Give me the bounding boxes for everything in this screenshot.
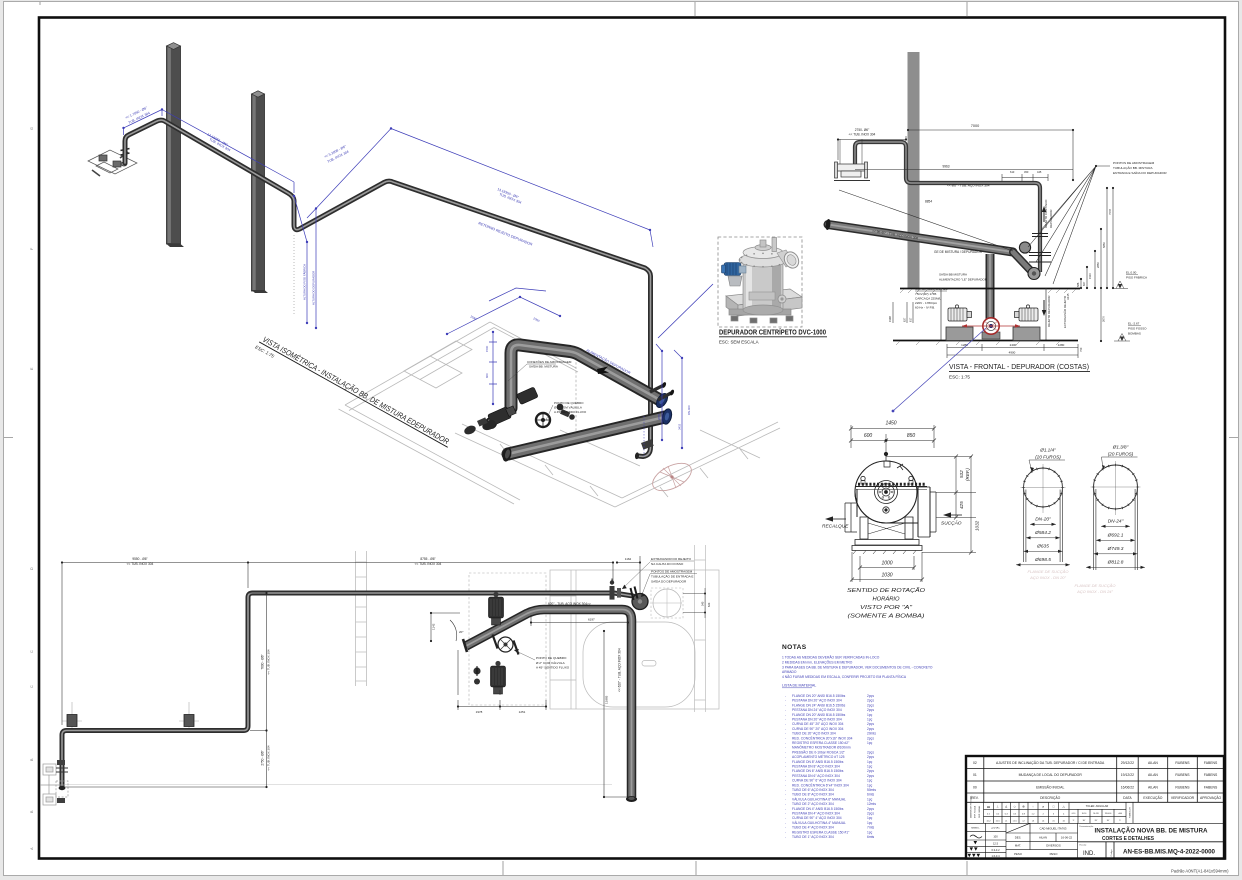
svg-text:PISO FOSSO: PISO FOSSO: [1128, 327, 1147, 331]
svg-text:(SOMENTE A BOMBA): (SOMENTE A BOMBA): [848, 614, 925, 620]
svg-text:-: -: [785, 835, 786, 839]
svg-text:TUBO DE 8" AÇO INOX 304: TUBO DE 8" AÇO INOX 304: [792, 793, 834, 797]
svg-text:FLANGE DE SUCÇÃO: FLANGE DE SUCÇÃO: [1075, 583, 1116, 588]
svg-text:<< Ø6" - TUB. AÇO INOX 304: << Ø6" - TUB. AÇO INOX 304: [947, 184, 990, 188]
svg-text:8854: 8854: [925, 200, 932, 204]
svg-text:TUBULAÇÃO DE ENTRADA E: TUBULAÇÃO DE ENTRADA E: [651, 574, 693, 579]
svg-text:FABENS: FABENS: [1204, 761, 1218, 765]
svg-text:1 TODAS AS MEDIDAS DEVERÃO SER: 1 TODAS AS MEDIDAS DEVERÃO SER VERIFICAD…: [782, 655, 880, 660]
svg-text:-: -: [785, 788, 786, 792]
svg-text:TUBO DE 6" AÇO INOX 304: TUBO DE 6" AÇO INOX 304: [792, 788, 834, 792]
svg-text:545: 545: [701, 601, 705, 606]
svg-text:PESTANA DN 20" AÇO INOX 304: PESTANA DN 20" AÇO INOX 304: [792, 718, 842, 722]
svg-text:Ø698.5: Ø698.5: [1034, 557, 1051, 563]
svg-text:TOLER. ANGULAR: TOLER. ANGULAR: [1086, 804, 1109, 808]
svg-text:ENTRADA E SAÍDA DO DEPURADOR: ENTRADA E SAÍDA DO DEPURADOR: [1113, 171, 1167, 175]
svg-text:⊥: ⊥: [996, 805, 999, 809]
svg-text:Denominação:: Denominação:: [1080, 825, 1094, 828]
svg-text:PRESSÃO DE 0-10bar ROSCA 1/2": PRESSÃO DE 0-10bar ROSCA 1/2": [792, 749, 846, 754]
svg-text:20°: 20°: [459, 630, 464, 634]
svg-text:AÇO INOX - DN 24": AÇO INOX - DN 24": [1076, 589, 1113, 594]
svg-text:<< TUB. INOX 304: << TUB. INOX 304: [849, 133, 876, 137]
svg-text:1978: 1978: [476, 710, 483, 714]
svg-text:NOTAS: NOTAS: [782, 644, 807, 651]
svg-text:12mts: 12mts: [867, 802, 876, 806]
svg-text:<< TUB. INOX 304: << TUB. INOX 304: [415, 562, 442, 566]
svg-text:TUBO DE 2" AÇO INOX 304: TUBO DE 2" AÇO INOX 304: [792, 802, 834, 806]
svg-text:A 45° SENTIDO FLUXO: A 45° SENTIDO FLUXO: [536, 666, 570, 670]
svg-text:▬: ▬: [987, 805, 990, 809]
svg-text:-: -: [785, 713, 786, 717]
svg-text:2400: 2400: [1010, 343, 1017, 347]
svg-text:1pç: 1pç: [867, 821, 873, 825]
svg-text:Ø1.1/4": Ø1.1/4": [1039, 448, 1056, 453]
svg-text:FLANGE DN 20" ANSI B16.5 150lb: FLANGE DN 20" ANSI B16.5 150lbs: [792, 713, 846, 717]
svg-text:DEPURADOR CENTRÍPETO DVC-100: DEPURADOR CENTRÍPETO DVC-1000: [719, 328, 826, 337]
svg-text:4 NÃO FURAR MEDIDAS EM ESCALA,: 4 NÃO FURAR MEDIDAS EM ESCALA, CONFERIR …: [782, 674, 907, 679]
svg-text:⌀: ⌀: [1042, 805, 1044, 809]
svg-text:2pçs: 2pçs: [867, 812, 874, 816]
svg-text:-: -: [785, 807, 786, 811]
svg-text:620" - TUB. AÇO INOX 304>>: 620" - TUB. AÇO INOX 304>>: [548, 602, 591, 606]
svg-text:REGISTRO ESFERA CLASSE 150 #1": REGISTRO ESFERA CLASSE 150 #1": [792, 830, 850, 834]
svg-text:AILAN: AILAN: [1148, 786, 1158, 790]
svg-text:-: -: [785, 830, 786, 834]
svg-text:DN-600: DN-600: [687, 405, 691, 415]
svg-text:02: 02: [973, 761, 977, 765]
svg-text:9963: 9963: [942, 165, 949, 169]
svg-text:623: 623: [707, 602, 711, 607]
svg-text:PESTANA DN 4" AÇO INOX 304: PESTANA DN 4" AÇO INOX 304: [792, 812, 840, 816]
svg-text:DEPURADOR: DEPURADOR: [1049, 210, 1053, 228]
svg-text:Ø 2" COM VÁLVULA: Ø 2" COM VÁLVULA: [554, 406, 582, 410]
svg-text:120-400: 120-400: [1105, 813, 1112, 815]
svg-text:75CV(4P) 1785: 75CV(4P) 1785: [915, 292, 937, 296]
svg-text:-: -: [785, 732, 786, 736]
svg-text:C: C: [30, 650, 34, 653]
svg-text:10-50: 10-50: [1082, 813, 1087, 815]
svg-text:C: C: [30, 685, 34, 688]
svg-text:SÍMBOLOS: SÍMBOLOS: [1129, 807, 1132, 818]
svg-text:3445: 3445: [1066, 293, 1070, 300]
svg-text:<< TUB. INOX 304: << TUB. INOX 304: [127, 562, 154, 566]
svg-text:Ø 2" COM VÁLVULA: Ø 2" COM VÁLVULA: [536, 661, 566, 665]
svg-text:ALIMENTAÇÃO "LE" DEPURADOR: ALIMENTAÇÃO "LE" DEPURADOR: [939, 277, 988, 282]
svg-text:613: 613: [1010, 170, 1015, 174]
svg-text:3 PARA BASES DA BB. DE MISTURA: 3 PARA BASES DA BB. DE MISTURA E DEPURAD…: [782, 666, 933, 670]
svg-text:-: -: [785, 718, 786, 722]
svg-text:SÍMBOL.: SÍMBOL.: [971, 827, 980, 830]
svg-text:CURVA DE 90° 6" AÇO INOX 304: CURVA DE 90° 6" AÇO INOX 304: [792, 779, 842, 783]
svg-text:1pç: 1pç: [867, 816, 873, 820]
svg-text:3415: 3415: [678, 423, 682, 430]
svg-text:VÁLVULA GUILHOTINA 4" MANUAL: VÁLVULA GUILHOTINA 4" MANUAL: [792, 821, 846, 825]
svg-text:ARMADO: ARMADO: [782, 670, 797, 674]
svg-text:2pçs: 2pçs: [867, 774, 874, 778]
svg-text:2pçs: 2pçs: [867, 755, 874, 759]
svg-text:-: -: [785, 821, 786, 825]
svg-text:Padrão A0NT(A1-841x594mm): Padrão A0NT(A1-841x594mm): [1171, 869, 1229, 874]
svg-text:29/12/22: 29/12/22: [1121, 761, 1134, 765]
svg-text:-: -: [785, 722, 786, 726]
svg-text:G: G: [30, 127, 34, 130]
svg-text:-: -: [785, 694, 786, 698]
svg-text:EXECUÇÃO: EXECUÇÃO: [1143, 795, 1162, 800]
svg-text:PONTO DE QUEBRO: PONTO DE QUEBRO: [536, 656, 567, 660]
svg-text:850: 850: [907, 433, 916, 439]
svg-text:VISTO POR "A": VISTO POR "A": [860, 605, 914, 611]
svg-text:CAD MIGUEL ITA763: CAD MIGUEL ITA763: [1040, 827, 1067, 831]
svg-text:DATA: DATA: [1123, 796, 1132, 800]
svg-text:PESTANA DN 8" AÇO INOX 304: PESTANA DN 8" AÇO INOX 304: [792, 765, 840, 769]
svg-text:CARCAÇA 225M/L: CARCAÇA 225M/L: [915, 297, 941, 301]
svg-text:<< TUB. INOX 304: << TUB. INOX 304: [267, 649, 271, 674]
svg-text:7000: 7000: [971, 124, 979, 128]
svg-text:1142: 1142: [432, 623, 436, 630]
svg-text:DESCRIÇÃO: DESCRIÇÃO: [1040, 795, 1061, 800]
svg-text:2 MEDIDAS EM mm, ELEVAÇÕES EM: 2 MEDIDAS EM mm, ELEVAÇÕES EM METRO: [782, 660, 853, 665]
svg-text:2pçs: 2pçs: [867, 708, 874, 712]
svg-text:-: -: [785, 708, 786, 712]
svg-text:REJEITO CONTÍNUO: REJEITO CONTÍNUO: [1044, 199, 1048, 228]
svg-text:CURVA DE 45° 20" AÇO INOX 304: CURVA DE 45° 20" AÇO INOX 304: [792, 722, 844, 726]
svg-text:-: -: [785, 727, 786, 731]
svg-text:Escala:: Escala:: [1080, 844, 1088, 846]
svg-text:100: 100: [993, 835, 998, 839]
svg-text:-: -: [785, 699, 786, 703]
svg-text:(20 FUROS): (20 FUROS): [1035, 455, 1061, 460]
svg-text:TUBULAÇÃO BB. MISTURA: TUBULAÇÃO BB. MISTURA: [1113, 165, 1153, 170]
svg-text:Ø584.2: Ø584.2: [1034, 530, 1051, 536]
svg-text:HORÁRIO: HORÁRIO: [873, 596, 900, 603]
svg-text:2pçs: 2pçs: [867, 699, 874, 703]
svg-text:PESO: PESO: [1014, 852, 1023, 856]
svg-text:1°: 1°: [1073, 820, 1075, 822]
svg-text:RUBENS: RUBENS: [1175, 786, 1190, 790]
svg-text:FLANGE DN 8" ANSI B16.5 150lbs: FLANGE DN 8" ANSI B16.5 150lbs: [792, 760, 844, 764]
svg-text:FLANGE DN 20" ANSI B16.5 150lb: FLANGE DN 20" ANSI B16.5 150lbs: [792, 694, 846, 698]
svg-text:1pç: 1pç: [867, 783, 873, 787]
svg-text:Ø812.8: Ø812.8: [1107, 560, 1124, 566]
svg-text:<< TUB. INOX 304: << TUB. INOX 304: [267, 745, 271, 770]
svg-text:7600 - Ø6": 7600 - Ø6": [261, 654, 265, 669]
svg-text:EL.-2.67: EL.-2.67: [1128, 322, 1140, 326]
svg-text:-: -: [785, 802, 786, 806]
svg-text:-: -: [785, 812, 786, 816]
svg-text:REJEITO DEPURADOR: REJEITO DEPURADOR: [1047, 296, 1051, 327]
svg-text:ESC: SEM ESCALA: ESC: SEM ESCALA: [719, 340, 759, 345]
svg-text:<< 620" - TUB. AÇO INOX 304: << 620" - TUB. AÇO INOX 304: [618, 648, 622, 692]
svg-text:Ø1.3/8": Ø1.3/8": [1112, 445, 1129, 450]
svg-text:TUBO DE 1" AÇO INOX 304: TUBO DE 1" AÇO INOX 304: [792, 835, 834, 839]
svg-text:REGISTRO ESFERA CLASSE 150 #2": REGISTRO ESFERA CLASSE 150 #2": [792, 741, 850, 745]
svg-text:-: -: [785, 779, 786, 783]
svg-text:CURVA DE 90° 4" AÇO INOX 304: CURVA DE 90° 4" AÇO INOX 304: [792, 816, 842, 820]
svg-text:2650: 2650: [657, 413, 661, 420]
svg-text:-: -: [785, 793, 786, 797]
svg-text:FLANGE DN 24" ANSI B16.5 150lb: FLANGE DN 24" ANSI B16.5 150lbs: [792, 703, 846, 707]
svg-text:APROVAÇÃO: APROVAÇÃO: [1200, 795, 1222, 800]
svg-text:TUBO DE 20" AÇO INOX 304: TUBO DE 20" AÇO INOX 304: [792, 732, 836, 736]
svg-text:4900: 4900: [1009, 351, 1016, 355]
svg-text:1pç: 1pç: [867, 741, 873, 745]
svg-text:5850: 5850: [1102, 242, 1106, 248]
svg-text:CURVA DE 90° 20" AÇO INOX 304: CURVA DE 90° 20" AÇO INOX 304: [792, 727, 844, 731]
svg-text:MUDANÇA DE LOCAL DO DEPURADOR: MUDANÇA DE LOCAL DO DEPURADOR: [1019, 773, 1083, 777]
svg-text:-: -: [785, 746, 786, 750]
svg-text:-: -: [785, 760, 786, 764]
svg-text:2pçs: 2pçs: [867, 727, 874, 731]
svg-text:LISTA DE MATERIAL: LISTA DE MATERIAL: [782, 684, 816, 688]
svg-text:-: -: [785, 783, 786, 787]
svg-text:9550 - Ø6": 9550 - Ø6": [132, 557, 147, 561]
svg-text:425: 425: [959, 501, 964, 509]
svg-text:EL.0.00: EL.0.00: [1126, 271, 1137, 275]
svg-text:D: D: [30, 567, 34, 570]
svg-text:-: -: [785, 736, 786, 740]
svg-text:00: 00: [973, 786, 977, 790]
svg-text:50-120: 50-120: [1093, 813, 1099, 815]
svg-text:RECALQUE: RECALQUE: [822, 524, 849, 530]
svg-text:2pçs: 2pçs: [867, 769, 874, 773]
svg-text:-: -: [785, 765, 786, 769]
svg-text:RUBENS: RUBENS: [1175, 761, 1190, 765]
svg-text:1998: 1998: [888, 316, 892, 322]
svg-text:MAT.: MAT.: [1015, 844, 1021, 848]
svg-text:PESO: PESO: [1050, 852, 1059, 856]
svg-text:PONTOS DE AMOSTRAGEM: PONTOS DE AMOSTRAGEM: [651, 570, 693, 574]
svg-text:FABENS: FABENS: [1204, 786, 1218, 790]
svg-text:19/12/22: 19/12/22: [1121, 773, 1134, 777]
svg-text:-: -: [785, 750, 786, 754]
svg-text:8755 - Ø6": 8755 - Ø6": [420, 557, 435, 561]
svg-text:DN-24": DN-24": [1108, 519, 1124, 525]
svg-text:1500: 1500: [485, 345, 489, 352]
svg-text:860: 860: [485, 373, 489, 378]
svg-text:1000: 1000: [881, 561, 892, 567]
svg-text:FLANGE DN 4" ANSI B16.5 150lbs: FLANGE DN 4" ANSI B16.5 150lbs: [792, 807, 844, 811]
svg-text:NA CALHA DO FOSSO: NA CALHA DO FOSSO: [651, 562, 684, 566]
svg-text:586: 586: [1076, 282, 1080, 287]
svg-text:Ø749.3: Ø749.3: [1107, 546, 1124, 552]
svg-text:PESTANA DN 6" AÇO INOX 304: PESTANA DN 6" AÇO INOX 304: [792, 774, 840, 778]
svg-text:-: -: [785, 741, 786, 745]
svg-text:-: -: [785, 816, 786, 820]
svg-text:∡: ∡: [1005, 805, 1008, 809]
svg-text:PONTOS DE AMOSTRAGEM: PONTOS DE AMOSTRAGEM: [1113, 161, 1155, 165]
svg-text:AJUSTES DE INCLINAÇÃO DA TUB.: AJUSTES DE INCLINAÇÃO DA TUB. DEPURADOR …: [996, 760, 1105, 765]
svg-text:DES.: DES.: [1015, 835, 1022, 839]
svg-text:FLANGE DN 6" ANSI B16.5 150lbs: FLANGE DN 6" ANSI B16.5 150lbs: [792, 769, 844, 773]
svg-text:PISO FÁBRICA: PISO FÁBRICA: [1126, 276, 1147, 280]
svg-text:AÇO INOX - DN 20": AÇO INOX - DN 20": [1029, 575, 1066, 580]
svg-text:01: 01: [973, 773, 977, 777]
svg-text:-: -: [785, 703, 786, 707]
svg-text:1pç: 1pç: [867, 718, 873, 722]
svg-text:ACOPLAMENTO MÉTRICO #T 125: ACOPLAMENTO MÉTRICO #T 125: [792, 754, 845, 759]
svg-text:(20 FUROS): (20 FUROS): [1108, 452, 1134, 457]
svg-text:1.6-0.4: 1.6-0.4: [991, 854, 1000, 858]
svg-text:EMISSÃO INICIAL: EMISSÃO INICIAL: [1036, 785, 1064, 790]
svg-text:RUBENS: RUBENS: [1175, 773, 1190, 777]
svg-text:1pç: 1pç: [867, 713, 873, 717]
svg-text:750: 750: [1079, 347, 1083, 352]
svg-text:-: -: [785, 826, 786, 830]
svg-text:2pçs: 2pçs: [867, 750, 874, 754]
svg-text:A 45° SENTIDO FLUXO: A 45° SENTIDO FLUXO: [554, 410, 587, 414]
svg-text:VERIFICADOR: VERIFICADOR: [1171, 796, 1195, 800]
svg-text:627: 627: [903, 317, 907, 322]
svg-text:CORTES E DETALHES: CORTES E DETALHES: [1102, 836, 1155, 842]
svg-text:2750- Ø6": 2750- Ø6": [855, 128, 869, 132]
svg-text:1910: 1910: [1088, 273, 1092, 279]
svg-text:EXTRAVASOR DO REJEITO: EXTRAVASOR DO REJEITO: [651, 557, 692, 561]
svg-text:AILAN: AILAN: [1039, 835, 1047, 839]
svg-text:1280: 1280: [1058, 343, 1065, 347]
svg-text:1pç: 1pç: [867, 797, 873, 801]
svg-text:DN-20": DN-20": [1035, 517, 1051, 523]
svg-text:AILAN: AILAN: [1148, 761, 1158, 765]
svg-text:6mts: 6mts: [867, 835, 874, 839]
svg-text:16-06-22: 16-06-22: [1061, 835, 1073, 839]
svg-text:60 Hz - IV P.B.: 60 Hz - IV P.B.: [915, 306, 935, 310]
svg-text:2pçs: 2pçs: [867, 807, 874, 811]
svg-text:PESTANA DN 20" AÇO INOX 304: PESTANA DN 20" AÇO INOX 304: [792, 699, 842, 703]
svg-text:2pçs: 2pçs: [867, 703, 874, 707]
svg-text:PONTO DE QUEBRO: PONTO DE QUEBRO: [554, 401, 584, 405]
svg-text:617: 617: [909, 317, 913, 322]
svg-text:AILAN: AILAN: [1148, 773, 1158, 777]
svg-text:SAÍDA DO DEPURADOR: SAÍDA DO DEPURADOR: [651, 580, 687, 584]
svg-text:7mts: 7mts: [867, 826, 874, 830]
svg-text:2750 - Ø6": 2750 - Ø6": [261, 750, 265, 765]
svg-text:-: -: [785, 769, 786, 773]
svg-text:827: 827: [1082, 281, 1086, 286]
svg-text:FLANGE DE SUCÇÃO: FLANGE DE SUCÇÃO: [1028, 569, 1069, 574]
svg-text:PESTANA DN 24" AÇO INOX 304: PESTANA DN 24" AÇO INOX 304: [792, 708, 842, 712]
svg-text:6.3-3.2: 6.3-3.2: [991, 848, 1000, 852]
svg-text:FABENS: FABENS: [1204, 773, 1218, 777]
svg-text:12.5: 12.5: [993, 842, 999, 846]
svg-text:6mts: 6mts: [867, 793, 874, 797]
svg-text:GE DE MISTURA / DEPURADOR: GE DE MISTURA / DEPURADOR: [934, 250, 983, 254]
svg-text:VISTA - FRONTAL - DEPURADO: VISTA - FRONTAL - DEPURADOR (COSTAS): [949, 362, 1089, 371]
svg-text:ALTURA DO PISO FÁBRICA: ALTURA DO PISO FÁBRICA: [303, 264, 307, 300]
svg-text:1pç: 1pç: [867, 765, 873, 769]
svg-text:1pç: 1pç: [867, 760, 873, 764]
svg-text:DIVERSOS: DIVERSOS: [1046, 844, 1061, 848]
svg-text:INSTALAÇÃO NOVA BB. DE MIS: INSTALAÇÃO NOVA BB. DE MISTURA: [1095, 826, 1208, 835]
svg-text:□: □: [1053, 805, 1055, 809]
svg-text:220V - 1780rpm: 220V - 1780rpm: [915, 301, 938, 305]
svg-text:2pçs: 2pçs: [867, 722, 874, 726]
svg-text:(REF.): (REF.): [965, 468, 970, 481]
svg-text:-: -: [785, 755, 786, 759]
svg-text:1251: 1251: [519, 710, 526, 714]
svg-text:2850: 2850: [1096, 262, 1100, 268]
svg-text:SUCÇÃO: SUCÇÃO: [941, 520, 962, 527]
svg-text:TUBO DE 4" AÇO INOX 304: TUBO DE 4" AÇO INOX 304: [792, 826, 834, 830]
svg-text:532: 532: [959, 470, 964, 478]
svg-text:Código:: Código:: [1111, 849, 1113, 857]
svg-text:2670: 2670: [1102, 316, 1106, 322]
svg-text:MOTOR WEG W22 IE3: MOTOR WEG W22 IE3: [915, 287, 948, 291]
svg-text:-: -: [785, 774, 786, 778]
svg-text:BOMBAS: BOMBAS: [1128, 332, 1141, 336]
svg-text:1162: 1162: [625, 557, 632, 561]
svg-text:ESP. SOLDA: ESP. SOLDA: [974, 805, 977, 818]
svg-text:MANÔMETRO MOSTRADOR Ø100mm: MANÔMETRO MOSTRADOR Ø100mm: [792, 745, 851, 750]
svg-text:SAÍDA BB MISTURA: SAÍDA BB MISTURA: [939, 273, 967, 277]
svg-text:16/06/22: 16/06/22: [1121, 786, 1134, 790]
svg-text:1pç: 1pç: [867, 779, 873, 783]
svg-text:1032: 1032: [975, 520, 980, 531]
svg-text:DIMENSÕES S/TOLER.: DIMENSÕES S/TOLER.: [970, 795, 973, 818]
svg-text:µm(*)Ra: µm(*)Ra: [991, 828, 1000, 830]
svg-text:ALTURA DO DEPURADOR: ALTURA DO DEPURADOR: [312, 271, 316, 305]
svg-text:13985: 13985: [605, 695, 609, 704]
svg-text:-: -: [785, 797, 786, 801]
svg-text:IND.: IND.: [1083, 851, 1095, 857]
svg-text:Ø692.1: Ø692.1: [1107, 533, 1124, 539]
svg-text:2pçs: 2pçs: [867, 736, 874, 740]
svg-text:450: 450: [1024, 170, 1029, 174]
svg-text:7578: 7578: [1108, 209, 1112, 215]
svg-text:VÁLVULA GUILHOTINA 6" MANUAL: VÁLVULA GUILHOTINA 6" MANUAL: [792, 797, 846, 801]
svg-text:1030: 1030: [881, 573, 892, 579]
svg-text:6197: 6197: [588, 618, 595, 622]
svg-text:AN-ES-BB.MIS.MQ-4-2022-0000: AN-ES-BB.MIS.MQ-4-2022-0000: [1123, 848, 1216, 855]
svg-text:>400: >400: [1118, 812, 1122, 815]
svg-text:50mts: 50mts: [867, 788, 876, 792]
svg-text:Ø635: Ø635: [1036, 544, 1049, 550]
svg-text:RED. CONCÊNTRICA 20"x16" INOX: RED. CONCÊNTRICA 20"x16" INOX 304: [792, 735, 853, 740]
svg-text:0-10: 0-10: [1072, 813, 1076, 815]
svg-text:1450: 1450: [885, 421, 896, 427]
svg-text:ESC: 1:75: ESC: 1:75: [949, 375, 970, 380]
svg-text:SAÍDA BB. MISTURA: SAÍDA BB. MISTURA: [529, 365, 558, 369]
svg-text:CONEXÕES DE AMOSTRAGEM: CONEXÕES DE AMOSTRAGEM: [527, 359, 572, 364]
svg-text:◌: ◌: [1032, 805, 1034, 809]
svg-text:SENTIDO DE ROTAÇÃO: SENTIDO DE ROTAÇÃO: [847, 587, 925, 594]
svg-text:600: 600: [864, 433, 873, 439]
svg-text:2pçs: 2pçs: [867, 694, 874, 698]
svg-text:RED. CONCÊNTRICA 6"x4" INOX 30: RED. CONCÊNTRICA 6"x4" INOX 304: [792, 782, 849, 787]
svg-text:20mts: 20mts: [867, 732, 876, 736]
svg-text:SUP. GERAL: SUP. GERAL: [978, 805, 981, 818]
svg-text:445: 445: [1037, 170, 1042, 174]
svg-text:1pç: 1pç: [867, 830, 873, 834]
